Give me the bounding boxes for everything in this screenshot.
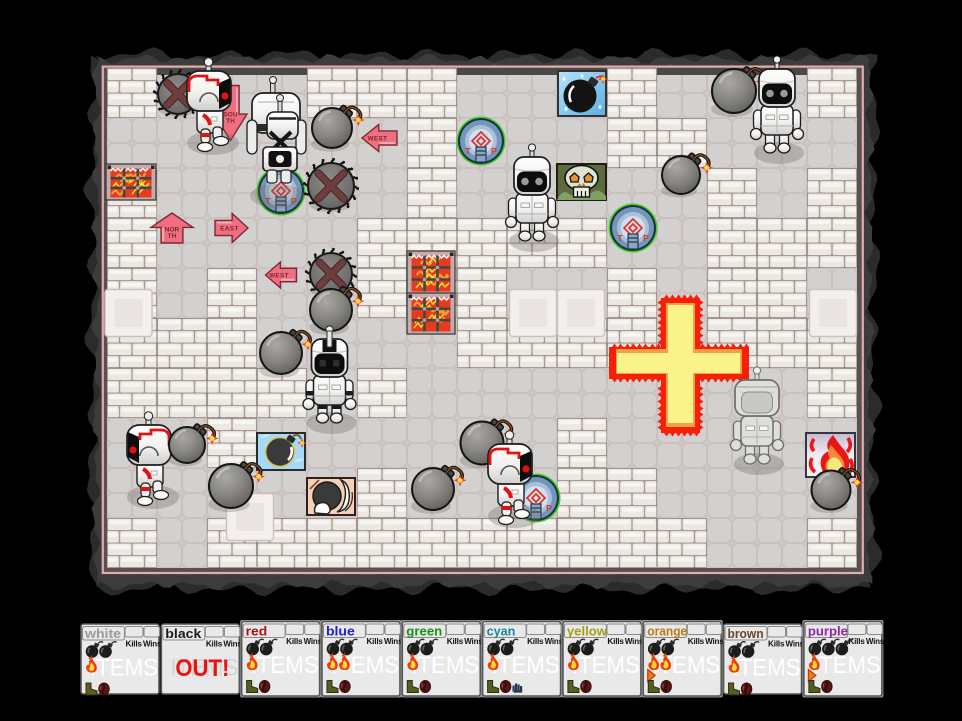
- svg-text:ITEMS: ITEMS: [251, 652, 319, 679]
- svg-text:white: white: [84, 626, 121, 641]
- svg-text:ITEMS: ITEMS: [733, 655, 801, 682]
- svg-text:Kills: Kills: [366, 637, 383, 646]
- svg-text:OUT!: OUT!: [175, 655, 229, 682]
- svg-text:yellow: yellow: [567, 624, 608, 639]
- svg-text:Wins: Wins: [545, 637, 564, 646]
- svg-text:Kills: Kills: [688, 637, 705, 646]
- svg-text:Wins: Wins: [464, 637, 483, 646]
- svg-text:Wins: Wins: [705, 637, 724, 646]
- svg-text:Wins: Wins: [786, 640, 805, 649]
- svg-text:green: green: [406, 624, 442, 639]
- svg-text:TH: TH: [168, 233, 177, 240]
- svg-text:P: P: [491, 146, 497, 156]
- svg-text:Wins: Wins: [304, 637, 323, 646]
- svg-text:black: black: [165, 626, 202, 641]
- svg-text:orange: orange: [647, 624, 687, 639]
- svg-text:Kills: Kills: [126, 640, 143, 649]
- svg-text:Kills: Kills: [607, 637, 624, 646]
- svg-text:WEST: WEST: [269, 273, 289, 280]
- svg-text:P: P: [643, 233, 649, 243]
- svg-text:ITEMS: ITEMS: [90, 655, 158, 682]
- svg-text:Wins: Wins: [384, 637, 403, 646]
- svg-text:ITEMS: ITEMS: [813, 652, 881, 679]
- svg-text:Kills: Kills: [206, 640, 223, 649]
- svg-text:Wins: Wins: [223, 640, 242, 649]
- svg-text:purple: purple: [808, 624, 848, 639]
- svg-text:blue: blue: [326, 624, 355, 639]
- svg-text:T: T: [465, 146, 471, 156]
- svg-text:Kills: Kills: [768, 640, 785, 649]
- svg-text:Kills: Kills: [527, 637, 544, 646]
- svg-text:T: T: [617, 233, 623, 243]
- svg-text:P: P: [546, 503, 552, 513]
- svg-text:Wins: Wins: [625, 637, 644, 646]
- svg-text:Kills: Kills: [447, 637, 464, 646]
- svg-text:Kills: Kills: [286, 637, 303, 646]
- svg-text:red: red: [246, 624, 268, 639]
- svg-text:ITEMS: ITEMS: [572, 652, 640, 679]
- svg-text:brown: brown: [728, 626, 764, 641]
- svg-text:WEST: WEST: [368, 136, 388, 143]
- svg-text:Wins: Wins: [866, 637, 885, 646]
- svg-text:Kills: Kills: [848, 637, 865, 646]
- svg-text:EAST: EAST: [220, 226, 238, 233]
- svg-text:TH: TH: [226, 118, 235, 125]
- svg-text:ITEMS: ITEMS: [492, 652, 560, 679]
- svg-text:Wins: Wins: [143, 640, 162, 649]
- svg-text:ITEMS: ITEMS: [411, 652, 479, 679]
- svg-text:cyan: cyan: [487, 624, 516, 639]
